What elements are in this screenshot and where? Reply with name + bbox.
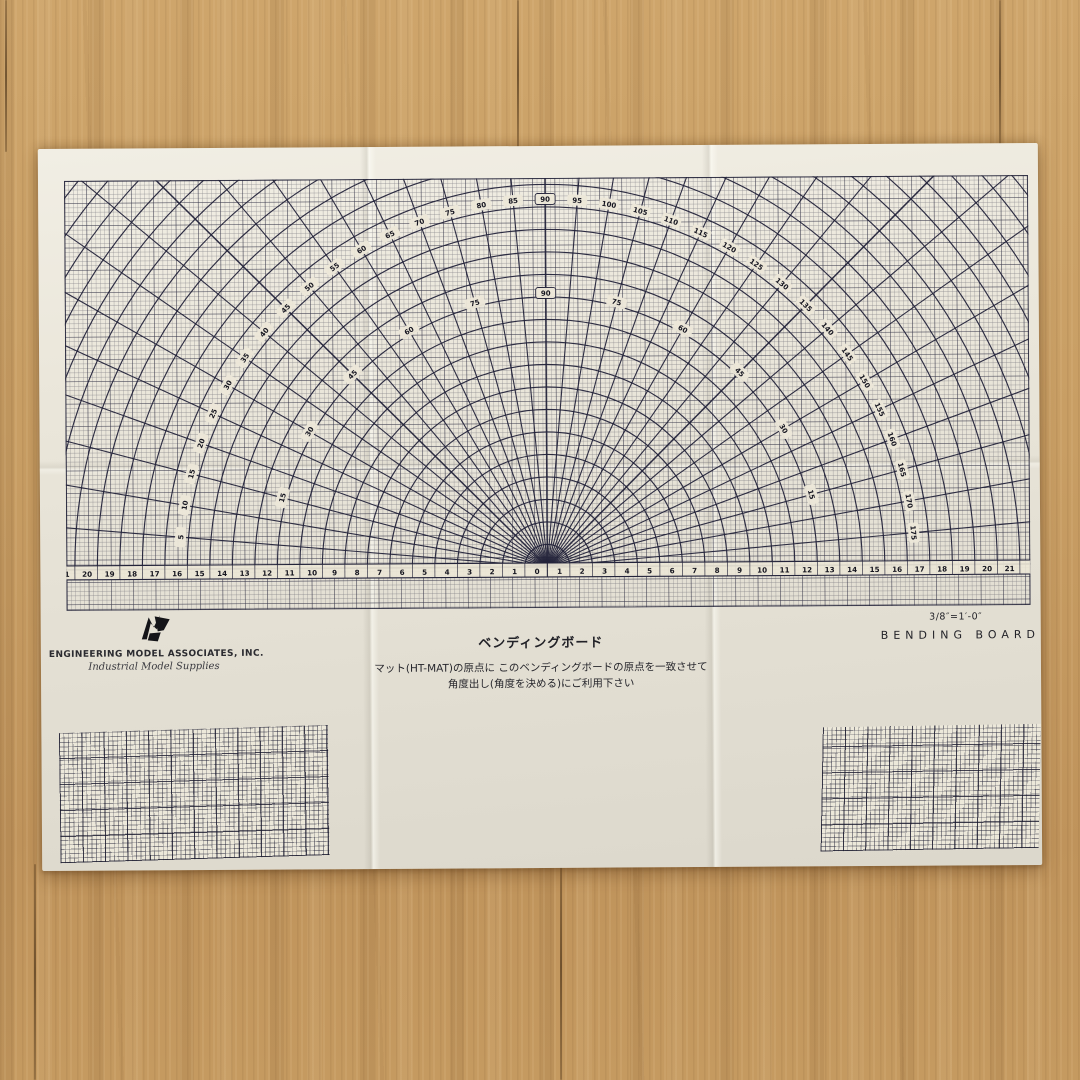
svg-text:10: 10 (181, 500, 191, 511)
company-block: ENGINEERING MODEL ASSOCIATES, INC. Indus… (49, 613, 259, 673)
svg-text:5: 5 (647, 566, 652, 575)
usage-instructions: マット(HT-MAT)の原点に このベンディングボードの原点を一致させて 角度出… (321, 659, 761, 694)
company-tagline: Industrial Model Supplies (49, 661, 259, 673)
svg-text:15: 15 (870, 565, 880, 574)
svg-text:12: 12 (262, 569, 272, 578)
svg-text:17: 17 (915, 565, 925, 574)
svg-text:4: 4 (445, 568, 450, 577)
svg-text:10: 10 (307, 568, 317, 577)
svg-text:9: 9 (332, 568, 337, 577)
svg-text:7: 7 (377, 568, 382, 577)
svg-text:5: 5 (422, 568, 427, 577)
svg-text:18: 18 (127, 569, 137, 578)
svg-text:16: 16 (172, 569, 182, 578)
scale-block: 3/8″=1′-0″ BENDING BOARD (881, 611, 1031, 642)
plank-seam (5, 0, 7, 152)
svg-text:95: 95 (572, 196, 582, 205)
bending-board-sheet: 2120191817161514131211109876543210123456… (38, 143, 1042, 871)
svg-text:7: 7 (692, 566, 697, 575)
svg-text:6: 6 (670, 566, 675, 575)
svg-text:15: 15 (195, 569, 205, 578)
svg-text:14: 14 (217, 569, 227, 578)
svg-text:11: 11 (780, 565, 790, 574)
svg-text:6: 6 (400, 568, 405, 577)
svg-text:17: 17 (150, 569, 160, 578)
svg-text:3: 3 (602, 567, 607, 576)
svg-text:2: 2 (490, 567, 495, 576)
grid-swatch-right (821, 724, 1041, 852)
svg-text:3: 3 (467, 567, 472, 576)
svg-text:8: 8 (355, 568, 360, 577)
scale-note: 3/8″=1′-0″ (881, 611, 1031, 623)
svg-text:13: 13 (240, 569, 250, 578)
company-name: ENGINEERING MODEL ASSOCIATES, INC. (49, 649, 259, 660)
product-name-en: BENDING BOARD (881, 628, 1031, 642)
svg-text:90: 90 (541, 290, 551, 298)
svg-text:90: 90 (540, 196, 550, 204)
svg-text:10: 10 (757, 566, 767, 575)
svg-text:175: 175 (908, 525, 917, 540)
svg-text:19: 19 (960, 564, 970, 573)
svg-text:0: 0 (535, 567, 540, 576)
svg-text:85: 85 (508, 197, 519, 206)
bending-chart: 2120191817161514131211109876543210123456… (64, 175, 1031, 611)
svg-text:16: 16 (892, 565, 902, 574)
svg-text:4: 4 (625, 566, 630, 575)
svg-text:9: 9 (737, 566, 742, 575)
grid-swatch-left (59, 725, 330, 863)
title-block: ベンディングボード (381, 631, 701, 652)
svg-text:2: 2 (580, 567, 585, 576)
product-title-jp: ベンディングボード (381, 631, 701, 652)
svg-text:11: 11 (285, 569, 295, 578)
svg-text:14: 14 (847, 565, 857, 574)
svg-text:8: 8 (715, 566, 720, 575)
instruction-line-1: マット(HT-MAT)の原点に このベンディングボードの原点を一致させて (321, 659, 761, 678)
svg-text:18: 18 (937, 565, 947, 574)
plank-seam (560, 854, 562, 1080)
svg-text:20: 20 (982, 564, 992, 573)
svg-text:1: 1 (557, 567, 562, 576)
svg-text:20: 20 (82, 570, 92, 579)
plank-seam (34, 864, 36, 1080)
svg-text:21: 21 (1005, 564, 1015, 573)
ema-logo-icon (134, 613, 174, 643)
plank-seam (517, 0, 519, 150)
svg-text:1: 1 (512, 567, 517, 576)
svg-text:5: 5 (177, 534, 185, 540)
instruction-line-2: 角度出し(角度を決める)にご利用下さい (321, 675, 761, 694)
svg-text:13: 13 (825, 565, 835, 574)
svg-text:19: 19 (105, 570, 115, 579)
photo-scene: 2120191817161514131211109876543210123456… (0, 0, 1080, 1080)
svg-text:12: 12 (802, 565, 812, 574)
svg-text:21: 21 (64, 570, 70, 579)
plank-seam (999, 0, 1001, 146)
